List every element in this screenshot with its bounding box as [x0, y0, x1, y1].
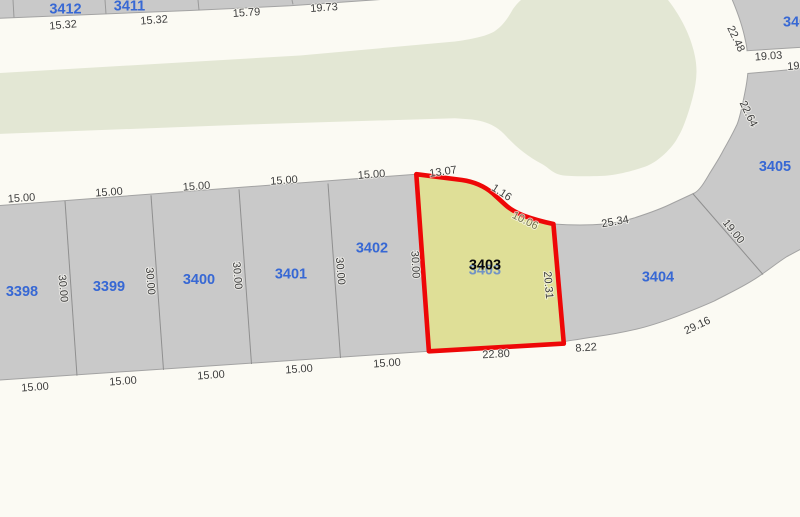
svg-text:8.22: 8.22 [575, 341, 597, 354]
svg-text:3403: 3403 [469, 258, 501, 274]
svg-text:30.00: 30.00 [333, 257, 347, 285]
svg-text:3399: 3399 [93, 279, 125, 295]
svg-text:3398: 3398 [6, 284, 38, 300]
svg-text:3401: 3401 [275, 267, 307, 283]
svg-text:30.00: 30.00 [143, 267, 157, 295]
svg-text:3400: 3400 [183, 272, 215, 288]
svg-text:15.00: 15.00 [7, 192, 35, 206]
svg-text:3411: 3411 [114, 0, 145, 15]
svg-text:3405: 3405 [759, 159, 791, 175]
svg-text:3406: 3406 [783, 15, 800, 31]
svg-text:15.00: 15.00 [285, 363, 313, 377]
svg-text:22.80: 22.80 [482, 348, 510, 361]
svg-text:15.00: 15.00 [182, 180, 210, 194]
svg-text:3404: 3404 [642, 270, 674, 286]
svg-text:20.31: 20.31 [541, 271, 555, 299]
svg-text:30.00: 30.00 [56, 274, 70, 302]
svg-text:30.00: 30.00 [230, 261, 244, 289]
svg-text:19.03: 19.03 [754, 50, 782, 64]
svg-text:3412: 3412 [49, 1, 81, 17]
svg-text:15.00: 15.00 [95, 186, 123, 200]
svg-text:19.73: 19.73 [310, 1, 338, 15]
svg-text:15.00: 15.00 [270, 174, 298, 188]
svg-text:3402: 3402 [356, 240, 388, 256]
svg-text:19.03: 19.03 [787, 59, 800, 73]
svg-text:15.79: 15.79 [232, 6, 260, 20]
svg-text:15.00: 15.00 [21, 381, 49, 395]
svg-text:15.00: 15.00 [357, 168, 385, 182]
svg-text:30.00: 30.00 [408, 250, 421, 278]
svg-text:15.00: 15.00 [373, 357, 401, 371]
svg-text:15.32: 15.32 [49, 18, 77, 32]
svg-text:15.00: 15.00 [109, 375, 137, 389]
svg-text:15.00: 15.00 [197, 369, 225, 383]
svg-text:15.32: 15.32 [140, 13, 168, 27]
